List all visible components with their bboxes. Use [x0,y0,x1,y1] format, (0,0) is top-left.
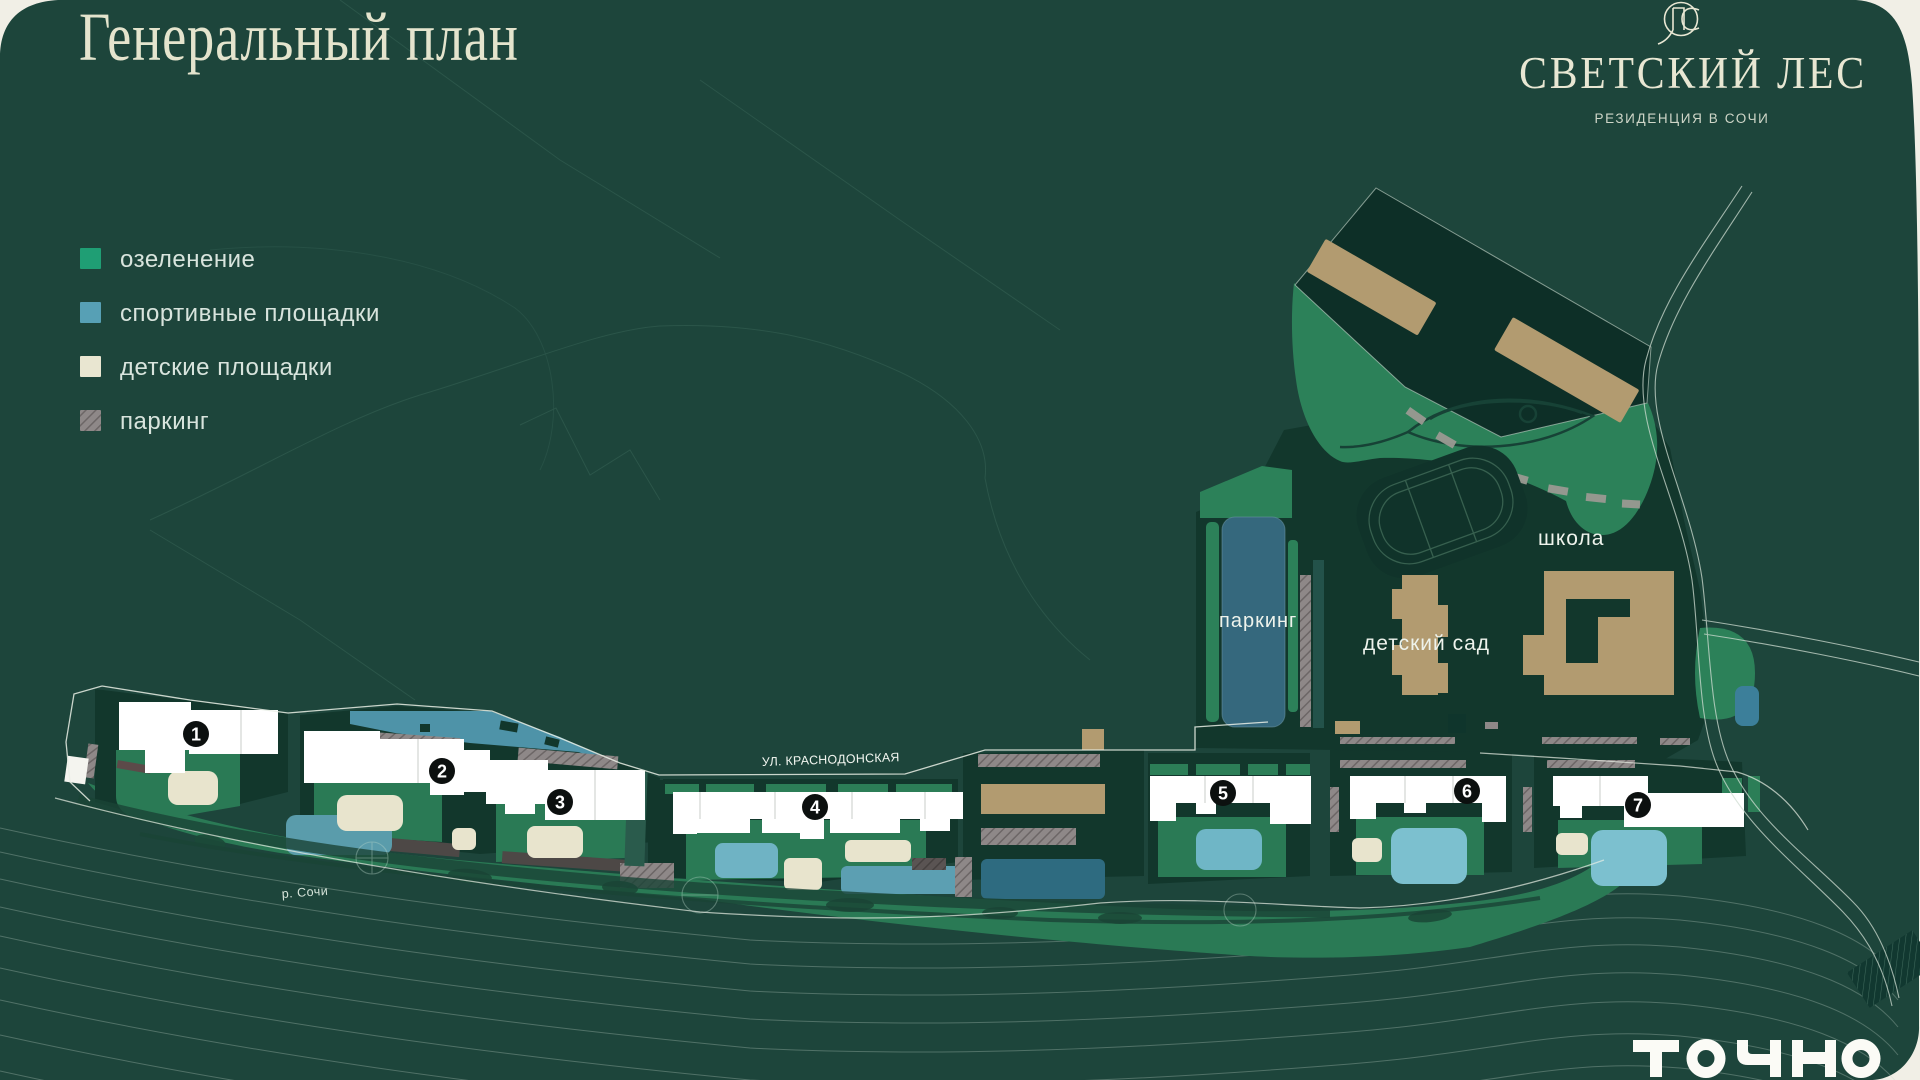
svg-text:паркинг: паркинг [120,408,209,435]
svg-text:Генеральный план: Генеральный план [79,0,519,75]
svg-text:СВЕТСКИЙ ЛЕС: СВЕТСКИЙ ЛЕС [1519,49,1867,99]
svg-text:5: 5 [1218,784,1228,804]
svg-text:2: 2 [437,762,447,782]
svg-text:3: 3 [555,793,565,813]
svg-text:спортивные площадки: спортивные площадки [120,300,380,327]
svg-text:4: 4 [810,798,820,818]
svg-text:детский сад: детский сад [1363,632,1490,655]
svg-text:РЕЗИДЕНЦИЯ В СОЧИ: РЕЗИДЕНЦИЯ В СОЧИ [1595,111,1770,126]
svg-text:школа: школа [1538,527,1604,550]
svg-text:6: 6 [1462,782,1472,802]
svg-text:паркинг: паркинг [1219,610,1297,632]
svg-text:1: 1 [191,725,201,745]
svg-text:детские площадки: детские площадки [120,354,333,381]
svg-text:озеленение: озеленение [120,246,255,273]
svg-text:7: 7 [1633,796,1643,816]
